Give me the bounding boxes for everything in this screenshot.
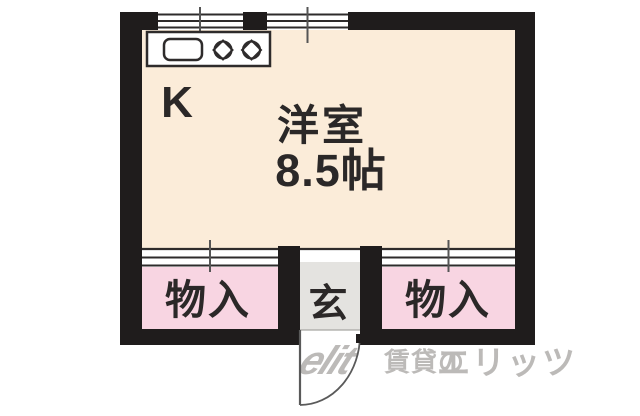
entrance-label: 玄 (308, 283, 347, 326)
wall-top-mid-segment (243, 12, 267, 30)
wall-pillar-right-of-entrance (360, 246, 382, 345)
wall-top-right-segment (348, 12, 535, 30)
main-room-label: 洋室 (277, 102, 367, 149)
floorplan-image: K 洋室 8.5帖 物入 物入 玄 elit 賃貸の エリッツ (0, 0, 640, 416)
watermark-brand: エリッツ (437, 344, 577, 381)
main-room-size-label: 8.5帖 (275, 145, 387, 196)
wall-top-left-segment (120, 12, 158, 30)
closet-right-label: 物入 (405, 277, 491, 323)
kitchen-label: K (161, 78, 193, 127)
wall-bottom-right-segment (360, 329, 535, 345)
kitchen-counter (147, 32, 270, 66)
closet-left-label: 物入 (165, 277, 251, 323)
wall-bottom-left-segment (120, 329, 300, 345)
wall-left (120, 12, 142, 345)
wall-right (515, 12, 535, 345)
wall-pillar-left-of-entrance (278, 246, 300, 345)
entry-door-latch-dot (356, 334, 365, 343)
sink-icon (164, 39, 202, 60)
entrance-opening (300, 248, 360, 262)
